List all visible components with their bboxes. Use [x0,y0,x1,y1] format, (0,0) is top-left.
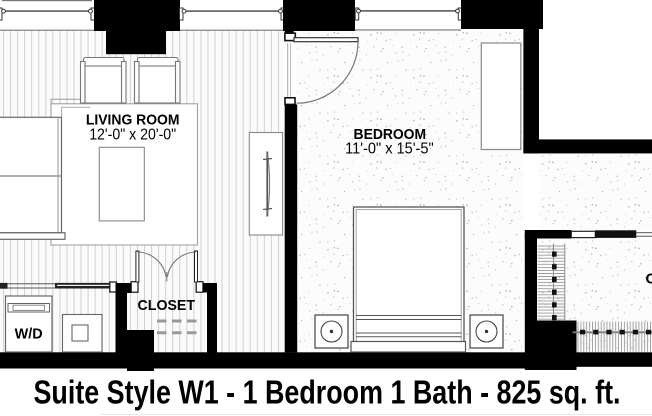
svg-text:CLOSET: CLOSET [646,271,652,288]
svg-text:W/D: W/D [15,327,43,343]
svg-text:12'-0" x 20'-0": 12'-0" x 20'-0" [89,127,176,144]
svg-text:11'-0" x 15'-5": 11'-0" x 15'-5" [345,141,434,158]
svg-text:Suite Style W1 - 1 Bedroom 1 B: Suite Style W1 - 1 Bedroom 1 Bath - 825 … [34,374,621,411]
svg-text:CLOSET: CLOSET [138,297,196,314]
